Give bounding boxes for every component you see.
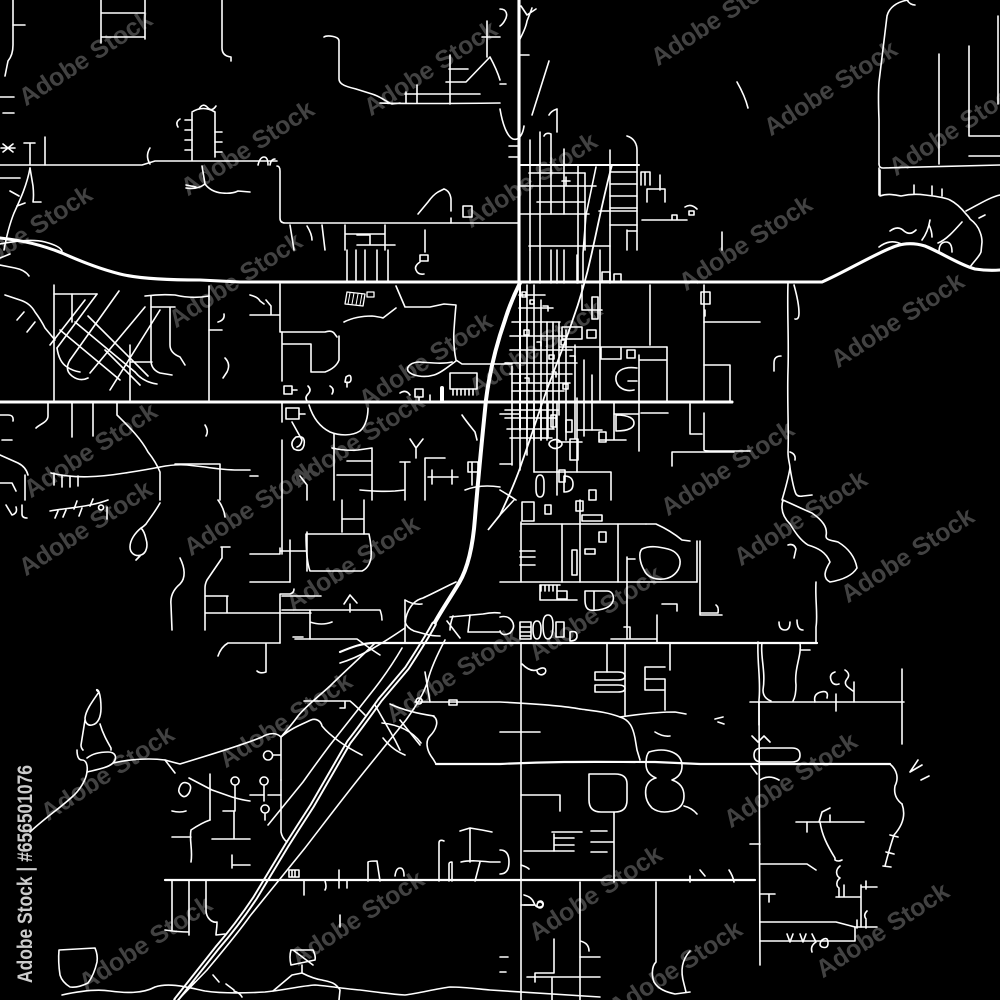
svg-text:Adobe Stock | #656501076: Adobe Stock | #656501076 [14,765,37,983]
